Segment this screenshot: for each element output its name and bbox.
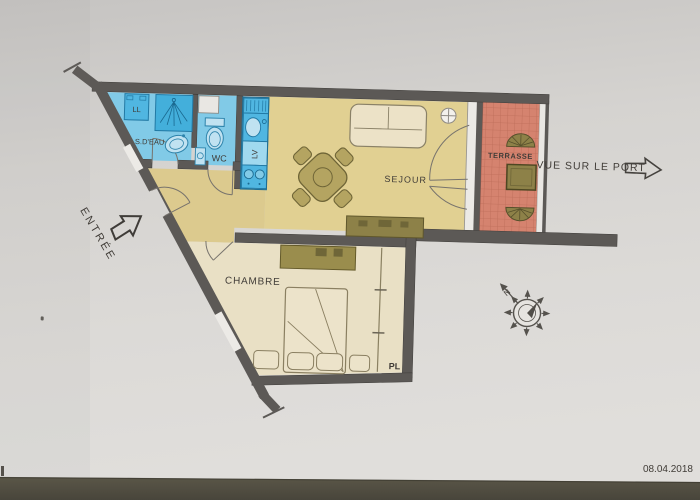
nightstand-left bbox=[253, 350, 278, 369]
room-label-s-deau: S.D'EAU bbox=[135, 137, 165, 147]
date-stamp: 08.04.2018 bbox=[643, 464, 693, 475]
nightstand-right bbox=[349, 355, 369, 372]
edge-mark bbox=[1, 466, 4, 476]
pillow bbox=[316, 353, 342, 371]
sink-basin bbox=[245, 118, 261, 137]
label-washing-machine: LL bbox=[132, 105, 141, 114]
dresser-item bbox=[334, 249, 343, 257]
sideboard-item bbox=[358, 220, 367, 226]
sideboard-item bbox=[400, 221, 408, 227]
room-label-terrasse: TERRASSE bbox=[488, 151, 533, 161]
floor-plan-canvas: TERRASSE bbox=[0, 0, 700, 500]
duct-shaft bbox=[198, 96, 218, 114]
burner bbox=[244, 170, 253, 179]
toilet-bowl bbox=[206, 127, 224, 149]
photo-edge-shade bbox=[0, 0, 90, 483]
hand-basin bbox=[195, 148, 205, 165]
label-dishwasher: LV bbox=[250, 149, 259, 159]
wc-door-leaf bbox=[232, 170, 233, 195]
kitchenette bbox=[240, 97, 269, 190]
room-label-pl: PL bbox=[389, 361, 401, 371]
burner bbox=[255, 170, 264, 179]
dresser-item bbox=[316, 248, 327, 256]
toilet-tank bbox=[205, 118, 224, 127]
pillow bbox=[287, 352, 313, 370]
sideboard-item bbox=[378, 220, 391, 227]
room-label-sejour: SEJOUR bbox=[384, 174, 427, 185]
floor-plan-photo: TERRASSE bbox=[0, 0, 700, 500]
wall-bath-bottom-right bbox=[233, 162, 241, 171]
room-label-wc: WC bbox=[212, 153, 228, 163]
dish-drainer bbox=[244, 98, 269, 114]
room-label-chambre: CHAMBRE bbox=[225, 276, 281, 289]
